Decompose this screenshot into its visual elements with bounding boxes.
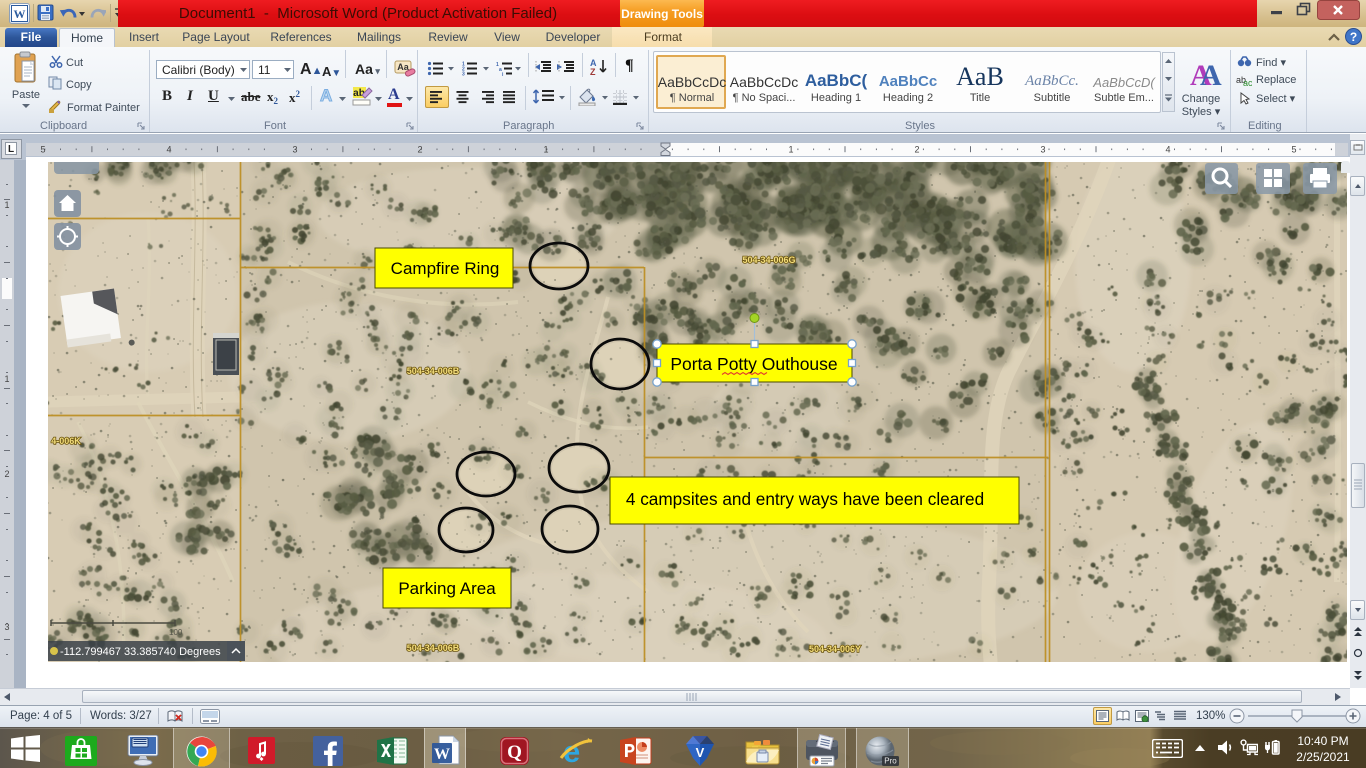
- svg-text:Pro: Pro: [884, 757, 897, 766]
- svg-text:2: 2: [4, 469, 9, 479]
- svg-text:3: 3: [4, 622, 9, 632]
- svg-text:100: 100: [169, 628, 183, 637]
- svg-text:1: 1: [543, 145, 548, 155]
- svg-text:1: 1: [4, 374, 9, 384]
- svg-text:W: W: [14, 7, 26, 21]
- svg-text:Parking Area: Parking Area: [398, 579, 496, 598]
- svg-text:Campfire Ring: Campfire Ring: [391, 259, 500, 278]
- svg-text:1: 1: [788, 145, 793, 155]
- svg-text:3: 3: [1040, 145, 1045, 155]
- svg-text:3: 3: [462, 72, 465, 77]
- svg-text:2: 2: [417, 145, 422, 155]
- svg-text:Porta Potty Outhouse: Porta Potty Outhouse: [670, 354, 837, 374]
- svg-text:i: i: [502, 72, 504, 76]
- svg-text:V: V: [696, 745, 705, 760]
- svg-text:3: 3: [292, 145, 297, 155]
- svg-text:4: 4: [166, 145, 171, 155]
- svg-text:1: 1: [4, 200, 9, 210]
- svg-text:504-34-006B: 504-34-006B: [407, 366, 460, 376]
- svg-text:Z: Z: [590, 67, 596, 76]
- svg-text:A: A: [1200, 59, 1222, 91]
- svg-text:4 campsites and entry ways hav: 4 campsites and entry ways have been cle…: [626, 489, 984, 509]
- svg-text:ac: ac: [1243, 78, 1252, 86]
- svg-text:504-34-006G: 504-34-006G: [742, 255, 795, 265]
- svg-text:W: W: [434, 746, 450, 763]
- svg-text:?: ?: [1350, 30, 1357, 44]
- svg-text:4-006K: 4-006K: [51, 436, 81, 446]
- svg-text:5: 5: [40, 145, 45, 155]
- svg-text:5: 5: [1291, 145, 1296, 155]
- svg-text:504-34-006B: 504-34-006B: [407, 643, 460, 653]
- svg-text:4: 4: [1165, 145, 1170, 155]
- svg-text:504-34-006Y: 504-34-006Y: [809, 644, 861, 654]
- svg-text:2: 2: [914, 145, 919, 155]
- svg-text:e: e: [563, 735, 580, 766]
- svg-text:-112.799467 33.385740 Degrees: -112.799467 33.385740 Degrees: [60, 646, 221, 658]
- svg-text:Q: Q: [507, 742, 522, 763]
